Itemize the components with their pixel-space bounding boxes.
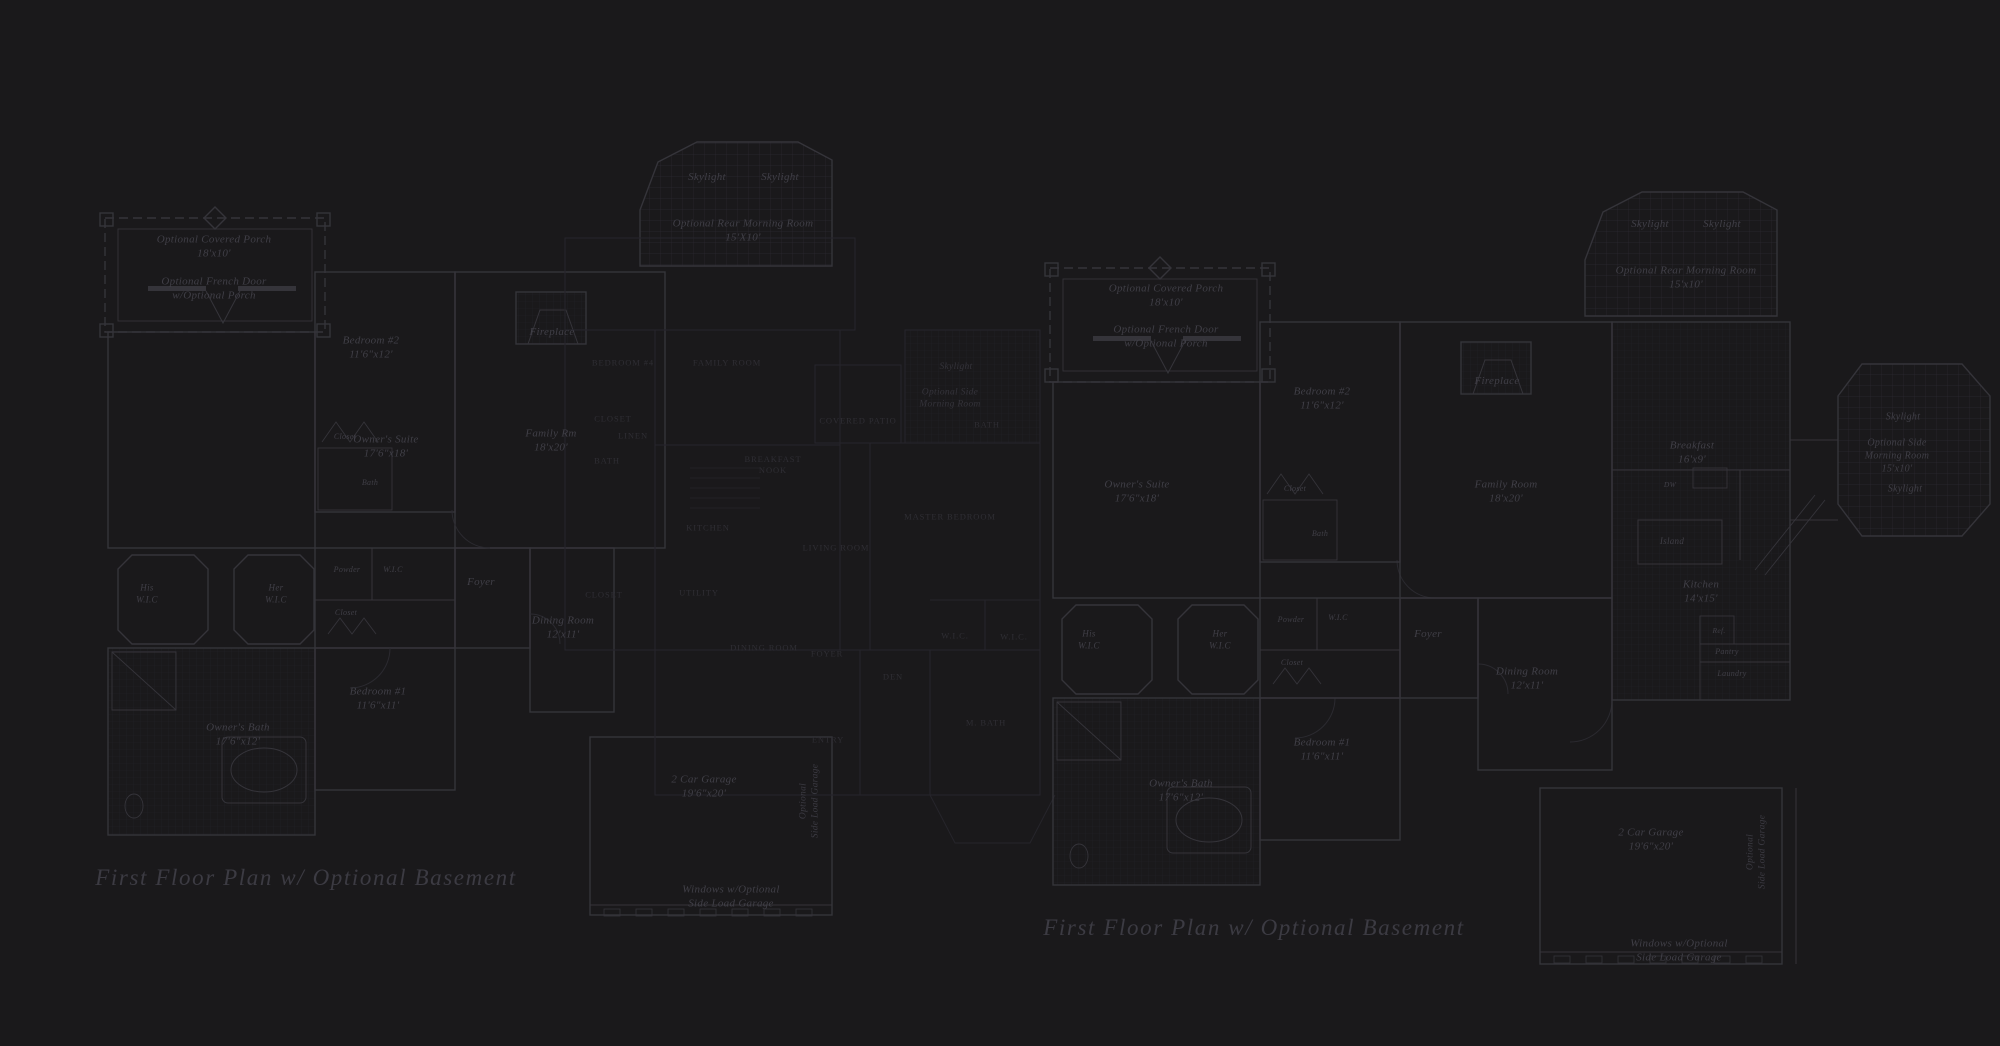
room-label: Ref.: [1712, 626, 1725, 636]
room-label: W.I.C.: [1000, 631, 1028, 642]
left-plan-caption: First Floor Plan w/ Optional Basement: [95, 865, 516, 891]
room-label: Utility: [679, 587, 719, 598]
room-label: His W.I.C: [1078, 628, 1100, 651]
room-label: Owner's Bath 17'6"x12': [206, 721, 270, 750]
room-label: Fireplace: [529, 325, 574, 339]
room-label: Skylight: [1888, 483, 1923, 496]
room-label: Optional Side Load Garage: [1745, 815, 1770, 889]
room-label: Dining Room 12'x11': [1496, 665, 1558, 694]
room-label: Family Rm 18'x20': [525, 427, 576, 456]
blueprint-canvas: SkylightSkylightOptional Rear Morning Ro…: [0, 0, 2000, 1046]
room-label: Closet: [1281, 658, 1303, 668]
room-label: His W.I.C: [136, 582, 158, 605]
room-label: Bedroom #1 11'6"x11': [350, 685, 407, 714]
room-label: Kitchen: [686, 522, 730, 533]
room-label: Skylight: [1703, 217, 1741, 231]
room-label: Foyer: [811, 648, 843, 659]
room-label: Family Room 18'x20': [1475, 478, 1538, 507]
room-label: W.I.C.: [941, 630, 969, 641]
room-label: Entry: [812, 734, 844, 745]
room-label: Owner's Suite 17'6"x18': [353, 433, 418, 462]
room-label: M. Bath: [966, 717, 1006, 728]
room-label: Skylight: [939, 361, 972, 373]
room-label: Foyer: [467, 575, 495, 589]
room-label: Dining Room: [730, 642, 798, 653]
room-label: Optional Covered Porch 18'x10': [157, 233, 272, 262]
room-label: Optional Rear Morning Room 15'x10': [1616, 264, 1757, 293]
room-label: Fireplace: [1474, 374, 1519, 388]
room-label: Covered Patio: [819, 415, 896, 426]
room-label: Island: [1660, 536, 1684, 548]
room-label: Kitchen 14'x15': [1683, 578, 1719, 607]
room-label: Optional Side Morning Room 15'x10': [1865, 437, 1929, 476]
room-label: Skylight: [761, 170, 799, 184]
room-label: Skylight: [1886, 411, 1921, 424]
room-label: Breakfast Nook: [744, 454, 801, 476]
room-label: Den: [883, 671, 903, 682]
room-label: Windows w/Optional Side Load Garage: [682, 883, 779, 912]
room-label: Closet: [1284, 484, 1306, 494]
room-label: Closet: [334, 432, 356, 442]
room-label: 2 Car Garage 19'6"x20': [1618, 826, 1683, 855]
room-label: Closet: [594, 413, 632, 424]
room-label: Bath: [594, 455, 620, 466]
room-label: Foyer: [1414, 627, 1442, 641]
room-label: Dining Room 12'x11': [532, 614, 594, 643]
room-label: Skylight: [1631, 217, 1669, 231]
room-label: Her W.I.C: [265, 582, 287, 605]
room-label: Bedroom #2 11'6"x12': [1294, 385, 1351, 414]
room-label: Bedroom #2 11'6"x12': [343, 334, 400, 363]
room-label: 2 Car Garage 19'6"x20': [671, 773, 736, 802]
room-label: Bath: [974, 419, 1000, 430]
room-label: Optional Side Morning Room: [919, 387, 980, 412]
room-label: Optional French Door w/Optional Porch: [1113, 323, 1218, 352]
room-label: Skylight: [688, 170, 726, 184]
right-plan-caption: First Floor Plan w/ Optional Basement: [1043, 915, 1464, 941]
room-label: Closet: [585, 589, 623, 600]
room-label: Powder: [334, 565, 361, 575]
room-label: W.I.C: [1328, 613, 1347, 623]
room-label: Master Bedroom: [904, 511, 996, 522]
room-label: Optional Side Load Garage: [798, 764, 823, 838]
room-label: Windows w/Optional Side Load Garage: [1630, 937, 1727, 966]
room-label: Bedroom #1 11'6"x11': [1294, 736, 1351, 765]
room-label: Optional Rear Morning Room 15'X10': [673, 217, 814, 246]
room-label: Bath: [1312, 529, 1328, 539]
room-label: Living Room: [803, 542, 870, 553]
room-label: Owner's Suite 17'6"x18': [1104, 478, 1169, 507]
room-label: Optional French Door w/Optional Porch: [161, 275, 266, 304]
room-label: Powder: [1278, 615, 1305, 625]
room-label: DW: [1664, 480, 1676, 490]
room-label: Closet: [335, 608, 357, 618]
room-label: Family Room: [693, 357, 761, 368]
room-label: Owner's Bath 17'6"x12': [1149, 777, 1213, 806]
room-label: W.I.C: [383, 565, 402, 575]
room-label: Optional Covered Porch 18'x10': [1109, 282, 1224, 311]
room-label: Breakfast 16'x9': [1670, 439, 1714, 468]
room-label: Linen: [618, 430, 648, 441]
room-label: Pantry: [1715, 647, 1739, 657]
room-label: Bath: [362, 478, 378, 488]
room-label: Her W.I.C: [1209, 628, 1231, 651]
room-label: Laundry: [1717, 669, 1746, 679]
room-label: Bedroom #4: [592, 357, 654, 368]
